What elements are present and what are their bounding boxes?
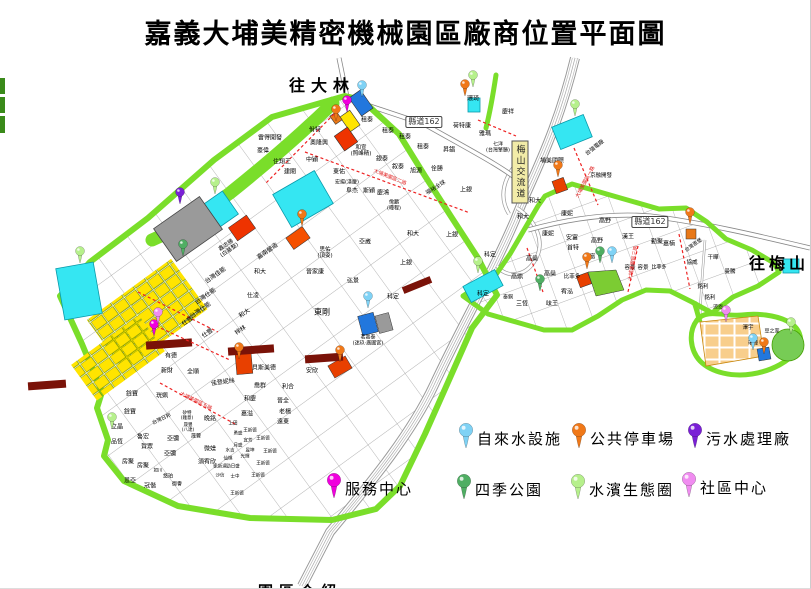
plot-label: 亞崴 xyxy=(359,240,371,247)
road-name-label: 大埔美園區五路 xyxy=(179,390,214,412)
plot-label: 建閎 xyxy=(284,170,296,177)
plot-label: 王新德 xyxy=(256,438,270,443)
legend-item-label: 公共停車場 xyxy=(590,428,675,449)
plot-label: 埔美國際 xyxy=(540,159,564,166)
plot-label: 銓寶 xyxy=(124,410,136,417)
plot-label: 亞彌 xyxy=(167,437,179,444)
plot-label: 凱新達 xyxy=(213,466,227,471)
plot-label: 仙棋 xyxy=(224,458,233,463)
map-pin-eco xyxy=(76,247,85,264)
plot-label: 奧隆興 xyxy=(310,141,328,148)
plot-label: 珖姵 xyxy=(156,394,168,401)
plot-label: 曼騰 xyxy=(724,269,735,275)
plot-label: 安欣 xyxy=(306,369,318,376)
plot-label: 台灣恩堡 xyxy=(684,238,704,254)
plot-label: 台強電廠 xyxy=(584,139,605,157)
plot-label: 和大 xyxy=(254,270,266,277)
plot-label: 租泰 xyxy=(361,118,373,125)
plot-label: 慶鴻 xyxy=(377,191,389,198)
plot-label: 銀泰 xyxy=(376,157,388,164)
plot-label: 仕凌 xyxy=(247,294,259,301)
plot-label: 嘉楠 xyxy=(663,242,675,249)
plot-label: 老楊 xyxy=(279,410,291,417)
plot-label: 科定 xyxy=(477,292,489,299)
plot-label: 思佑 (頂姿) xyxy=(317,247,332,259)
plot-label: 福裕全球 xyxy=(425,180,447,197)
legend-item-label: 污水處理廠 xyxy=(706,428,791,449)
plot-label: 東佑 xyxy=(333,170,345,177)
plot-label: 上田 xyxy=(229,423,238,428)
plot-label: 七洋 (台灣擎勝) xyxy=(486,143,510,154)
plot-label: 王新德 xyxy=(230,493,244,498)
plot-label: 有德 xyxy=(165,354,177,361)
edge-strip xyxy=(0,97,5,113)
plot-label: 高野 xyxy=(591,239,603,246)
plot-label: 荷特康 xyxy=(453,124,471,131)
plot-label: 環琦 xyxy=(467,97,479,104)
map-pin-service xyxy=(150,320,159,337)
map-pin-waterworks xyxy=(459,423,473,448)
maroon-bars xyxy=(28,276,432,390)
plot-label: 王新德 xyxy=(243,430,257,435)
plot-label: 佾特 xyxy=(309,128,321,135)
plot-label: 勁日盛 xyxy=(226,466,240,471)
map-pin-service xyxy=(343,96,352,113)
map-pin-parking xyxy=(235,343,244,360)
plot-label: 旭源 xyxy=(410,169,422,176)
county-road-162 xyxy=(339,58,810,322)
plot-label: 租泰 xyxy=(417,145,429,152)
plot-label: 仕豐 xyxy=(201,328,215,340)
plot-label: 銘利 xyxy=(697,284,708,290)
plot-label: 微媄 xyxy=(204,447,216,454)
plot-label: 喬群 xyxy=(254,384,266,391)
plot-label: 瑞曄 xyxy=(748,341,758,347)
plot-label: 高鼎 xyxy=(511,275,523,282)
plot-label: 安富 xyxy=(566,236,578,243)
plot-label: 比菲多 xyxy=(651,265,666,271)
road-name-label: 大埔美園區三路 xyxy=(627,245,640,281)
map-pin-parking xyxy=(336,346,345,363)
plot-label: 首特 xyxy=(567,246,579,253)
map-pin-sewage xyxy=(688,423,702,448)
plot-label: 王新德 xyxy=(263,451,277,456)
legend-item-label: 四季公園 xyxy=(475,479,543,500)
plot-label: 東剛 xyxy=(314,309,330,318)
plot-label: 嘉南營造 xyxy=(256,242,279,261)
plot-label: 上銀 xyxy=(446,233,458,240)
plot-label: 仕豐 xyxy=(181,316,195,328)
plot-label: 勇盛 xyxy=(234,433,243,438)
plot-label: 魯宏 xyxy=(137,435,149,442)
plot-label: 弘景 xyxy=(347,279,359,286)
plot-label: 阜杰 xyxy=(346,189,358,196)
plot-label: 御譽 xyxy=(172,482,182,488)
plot-label: 佺勝 xyxy=(431,167,443,174)
plot-label: 台灣佳能 xyxy=(204,266,227,285)
plot-label: 干曄 xyxy=(707,255,718,261)
plot-label: 雅瑪 xyxy=(479,132,491,139)
legend-item-label: 社區中心 xyxy=(700,477,768,498)
plot-label: 澤宇 xyxy=(742,325,753,331)
plot-label: 租泰 xyxy=(382,129,394,136)
plot-label: 漢王 xyxy=(622,235,634,242)
plot-label: 和宣 (照峰精) xyxy=(351,145,372,157)
plot-label: 房聚 xyxy=(122,460,134,467)
plot-label: 中穎 xyxy=(306,158,318,165)
plot-label: 沙信 xyxy=(216,475,225,480)
map-pin-parking xyxy=(760,338,769,355)
plot-label: 科定 xyxy=(387,295,399,302)
plot-label: 士中 xyxy=(231,476,240,481)
plot-label: 晚銘 xyxy=(204,417,216,424)
map-pin-waterworks xyxy=(364,292,373,309)
plot-label: 三恆 xyxy=(516,302,528,309)
map-pin-eco xyxy=(787,318,796,335)
pins-overlay xyxy=(0,0,811,589)
plot-label: 高燊 xyxy=(526,257,538,264)
plot-label: 康妮 xyxy=(542,232,554,239)
plot-label: 旦富 xyxy=(584,254,595,260)
map-pin-eco xyxy=(571,474,585,499)
plot-label: 晟豐 xyxy=(191,434,201,440)
plot-label: 康妮 xyxy=(561,212,573,219)
edge-strip xyxy=(0,116,5,133)
plot-label: 租泰 xyxy=(399,135,411,142)
plot-label: 月盛 xyxy=(234,445,243,450)
plot-label: 宏揚(漢慶) xyxy=(335,180,359,186)
plot-label: 水吉 xyxy=(226,450,235,455)
map-pin-parking xyxy=(572,423,586,448)
east-boundary xyxy=(463,184,779,330)
plot-label: 冠偕 xyxy=(144,484,156,491)
plot-label: 和大 xyxy=(238,308,252,320)
plot-label: 涼恩 xyxy=(713,305,723,311)
plot-label: 佾鵬 (曄程) xyxy=(387,201,401,212)
highway xyxy=(299,58,577,586)
plot-label: 高燊 xyxy=(544,272,556,279)
plot-label: 斯穎 xyxy=(363,189,375,196)
map-pin-community xyxy=(154,308,163,325)
plot-label: 宜芳 xyxy=(244,440,253,445)
road-badge: 縣道162 xyxy=(631,216,668,228)
southeast-cluster-boundary xyxy=(691,314,800,375)
plot-label: 住翔王 xyxy=(273,160,291,167)
plot-label: 晉家康 xyxy=(306,270,324,277)
bottom-partial-text: 園區介紹 xyxy=(258,581,342,589)
plot-label: 茗嘉泰 (迷玖·廣圃宮) xyxy=(353,336,384,347)
map-pin-waterworks xyxy=(608,247,617,264)
edge-strip xyxy=(0,78,5,94)
map-pin-waterworks xyxy=(358,81,367,98)
map-pin-eco xyxy=(571,100,580,117)
plot-label: 豆之家 xyxy=(764,329,779,335)
plot-label: 新財 xyxy=(161,369,173,376)
plot-label: 王新德 xyxy=(251,475,265,480)
plot-label: 和大 xyxy=(529,199,541,206)
map-container: 嘉義大埔美精密機械園區廠商位置平面圖 往大林 往梅山 園區介紹 梅山交流道 雷得… xyxy=(0,0,811,589)
map-pin-community xyxy=(682,472,696,497)
plot-label: 立晶 xyxy=(111,425,123,432)
direction-to-dalin: 往大林 xyxy=(289,72,355,96)
plot-label: 銘利 xyxy=(704,295,715,301)
map-pin-park xyxy=(457,474,471,499)
sewage-plant-block xyxy=(154,197,223,262)
map-pin-sewage xyxy=(176,188,185,205)
plot-label: 慶祥 xyxy=(502,110,514,117)
plot-label: 房聚 xyxy=(137,464,149,471)
plot-label: 協威 xyxy=(686,260,697,266)
direction-to-meishan: 往梅山 xyxy=(749,250,809,274)
plot-label: 全順 xyxy=(187,370,199,377)
plot-label: 利合 xyxy=(282,385,294,392)
meishan-interchange-badge: 梅山交流道 xyxy=(512,141,529,204)
plot-label: 味王 xyxy=(546,302,558,309)
plot-label: 梓林 xyxy=(234,325,248,337)
legend-item-label: 服務中心 xyxy=(345,478,413,499)
map-pin-service xyxy=(327,473,341,498)
plot-label: 台灣日邦 xyxy=(152,413,172,426)
plot-label: 昇錩 xyxy=(443,148,455,155)
plot-label: 科定 xyxy=(484,253,496,260)
water-bodies xyxy=(56,98,799,320)
map-pin-eco xyxy=(469,71,478,88)
plot-label: 和大 xyxy=(407,232,419,239)
plot-label: 王新德 xyxy=(256,463,270,468)
plot-label: 遠東 xyxy=(277,420,289,427)
plot-label: 悠珀 xyxy=(163,474,173,480)
map-pin-parking xyxy=(686,208,695,225)
plot-label: 上銀 xyxy=(400,261,412,268)
plot-label: 矽特 (雞意) xyxy=(181,412,194,422)
east-section xyxy=(463,184,779,330)
page-title: 嘉義大埔美精密機械園區廠商位置平面圖 xyxy=(0,12,811,51)
plot-label: 鑫志勝 (白基整) xyxy=(216,237,240,259)
plot-label: 豪偉 xyxy=(257,149,269,156)
plot-label: 嘉溢 xyxy=(241,412,253,419)
legend-item-label: 自來水設施 xyxy=(477,428,562,449)
road-badge: 縣道162 xyxy=(405,116,442,128)
map-pin-parking xyxy=(461,80,470,97)
eco-corridor xyxy=(152,103,333,240)
plot-label: 賀眾 xyxy=(141,445,153,452)
map-pin-parking xyxy=(332,105,341,122)
plot-label: 如川 xyxy=(154,470,163,475)
plot-label: 泰銅 xyxy=(503,295,513,301)
plot-label: 比菲多 xyxy=(564,274,581,280)
map-pin-eco xyxy=(211,178,220,195)
plot-label: 品恆 xyxy=(111,440,123,447)
plot-label: 貝斯美德 xyxy=(252,366,276,373)
map-pin-parking xyxy=(298,210,307,227)
plot-label: 高野 xyxy=(599,219,611,226)
road-name-label: 大埔美園區一路 xyxy=(574,165,597,199)
plot-label: 和慶 xyxy=(244,397,256,404)
plot-label: 光輝 xyxy=(241,456,250,461)
plot-label: 和大 xyxy=(517,215,529,222)
plot-label: 宥泓 xyxy=(561,290,573,297)
map-graphic xyxy=(0,0,811,589)
map-pin-eco xyxy=(474,257,483,274)
plot-label: 晉全 xyxy=(277,399,289,406)
map-pin-park xyxy=(596,247,605,264)
plot-label: 銓寶 xyxy=(126,392,138,399)
legend-item-label: 水濱生態圈 xyxy=(589,479,674,500)
plot-label: 容景 xyxy=(637,265,648,271)
yellow-lot-cluster-b xyxy=(71,316,165,401)
map-pin-park xyxy=(179,240,188,257)
plot-label: 叙泰 xyxy=(392,165,404,172)
plot-label: 亞彌 xyxy=(164,452,176,459)
plot-label: 雷得開發 xyxy=(258,136,282,143)
plot-label: 上銀 xyxy=(460,188,472,195)
plot-label: 恩亞 xyxy=(124,479,136,486)
plot-label: 佳登妮絲 xyxy=(211,378,236,388)
plot-label: 勤聚 xyxy=(651,240,663,247)
